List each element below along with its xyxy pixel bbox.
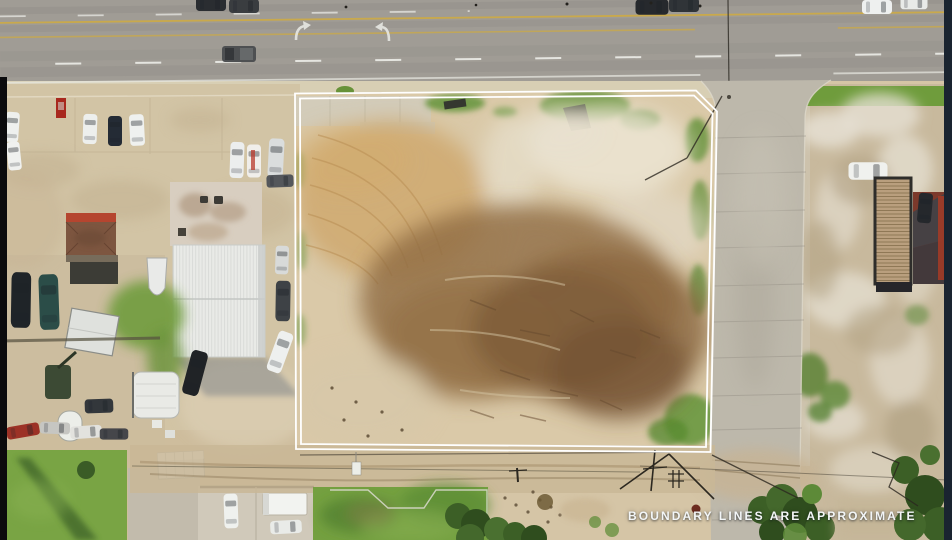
vacant-lot	[290, 86, 722, 458]
vehicle	[11, 272, 32, 328]
vehicle	[85, 399, 114, 414]
vehicle	[100, 428, 129, 439]
pickup-truck	[222, 46, 256, 62]
vehicle	[275, 281, 290, 322]
boardwalk-structure	[875, 178, 912, 292]
vehicle	[669, 0, 699, 12]
aerial-scene	[0, 0, 952, 540]
vehicle	[275, 246, 289, 275]
vehicle	[70, 425, 102, 440]
vehicle	[196, 0, 226, 11]
vehicle	[267, 138, 284, 178]
red-building	[913, 192, 944, 284]
vehicle	[229, 0, 259, 13]
photo-edge-right	[944, 0, 952, 540]
vehicle	[38, 274, 60, 330]
store-sign	[56, 98, 66, 118]
vehicle	[82, 114, 97, 144]
covered-boat	[147, 258, 167, 295]
vehicle	[223, 494, 238, 529]
canopy-structure	[133, 372, 179, 418]
aerial-property-photo: BOUNDARY LINES ARE APPROXIMATE	[0, 0, 952, 540]
vehicle	[108, 116, 122, 146]
metal-shed	[65, 308, 119, 356]
house-building	[66, 213, 118, 284]
red-shrub	[692, 505, 701, 514]
vehicle	[266, 174, 293, 188]
rooftop-unit	[200, 196, 208, 203]
vehicle	[229, 142, 244, 178]
vehicle	[40, 422, 70, 435]
vehicle	[901, 0, 928, 9]
photo-edge-left	[0, 77, 7, 540]
vehicle	[129, 114, 145, 146]
carport	[70, 262, 118, 284]
rooftop-unit	[214, 196, 223, 204]
vehicle	[270, 520, 302, 535]
vehicle	[917, 192, 934, 223]
box-truck	[263, 493, 307, 515]
vehicle	[862, 0, 892, 14]
